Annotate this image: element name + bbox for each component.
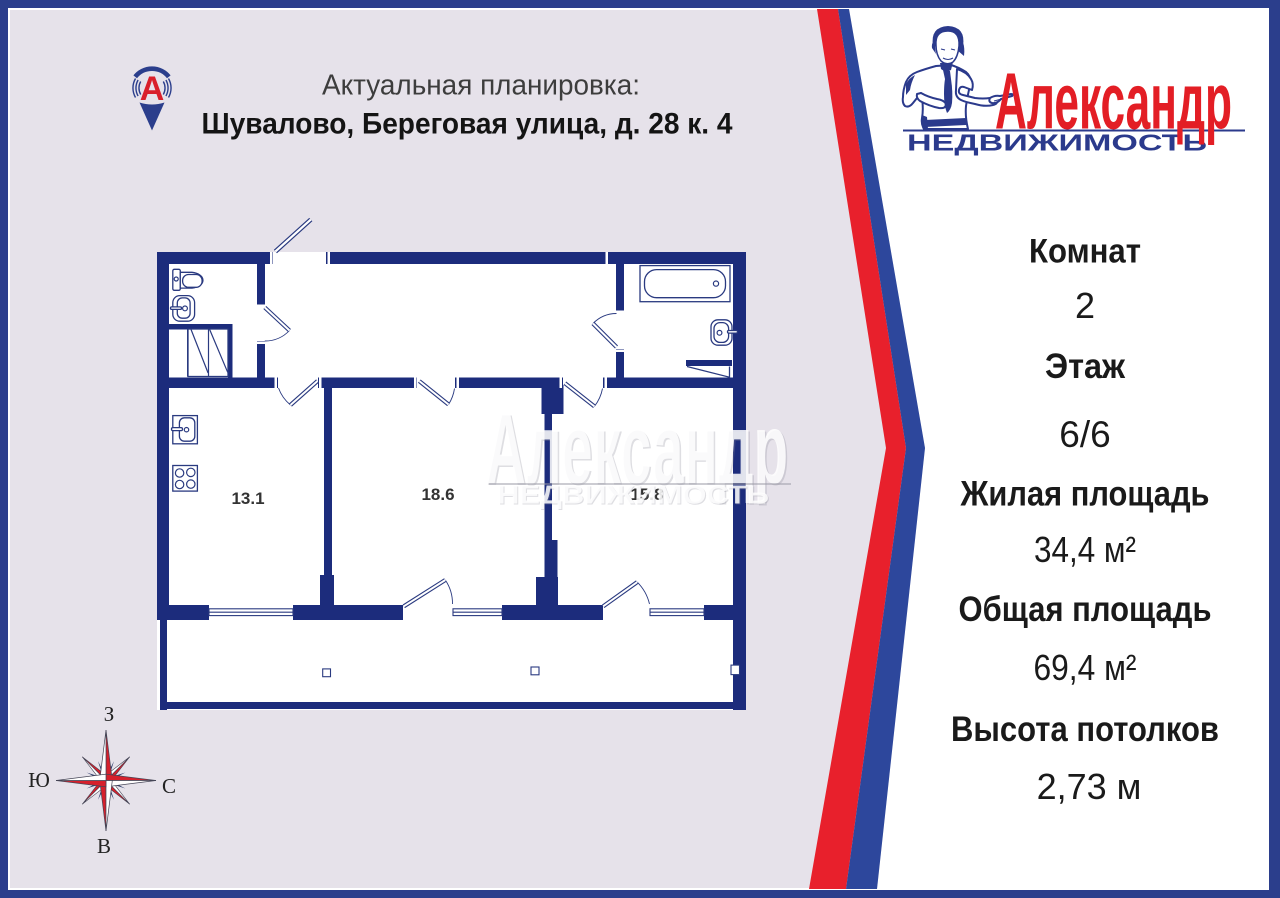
svg-text:С: С [162, 774, 176, 798]
svg-text:2,73 м: 2,73 м [1037, 766, 1142, 807]
svg-text:Высота потолков: Высота потолков [951, 710, 1219, 749]
svg-text:34,4 м²: 34,4 м² [1034, 529, 1136, 570]
svg-text:А: А [140, 70, 165, 108]
svg-text:НЕДВИЖИМОСТЬ: НЕДВИЖИМОСТЬ [497, 480, 769, 510]
svg-text:Актуальная планировка:: Актуальная планировка: [322, 70, 640, 102]
svg-text:18.6: 18.6 [421, 485, 454, 504]
svg-text:6/6: 6/6 [1059, 414, 1110, 455]
svg-text:Шувалово, Береговая улица, д.: Шувалово, Береговая улица, д. 28 к. 4 [202, 108, 733, 141]
svg-text:Этаж: Этаж [1045, 347, 1126, 386]
svg-text:В: В [97, 834, 111, 858]
svg-text:69,4 м²: 69,4 м² [1034, 647, 1137, 688]
svg-text:Комнат: Комнат [1029, 233, 1141, 271]
svg-text:13.1: 13.1 [231, 489, 264, 508]
svg-text:Общая площадь: Общая площадь [959, 590, 1212, 629]
svg-text:Ю: Ю [28, 768, 50, 792]
svg-text:Жилая площадь: Жилая площадь [960, 475, 1210, 514]
svg-text:З: З [104, 702, 115, 726]
svg-text:2: 2 [1075, 285, 1095, 326]
svg-text:Александр: Александр [995, 57, 1232, 146]
